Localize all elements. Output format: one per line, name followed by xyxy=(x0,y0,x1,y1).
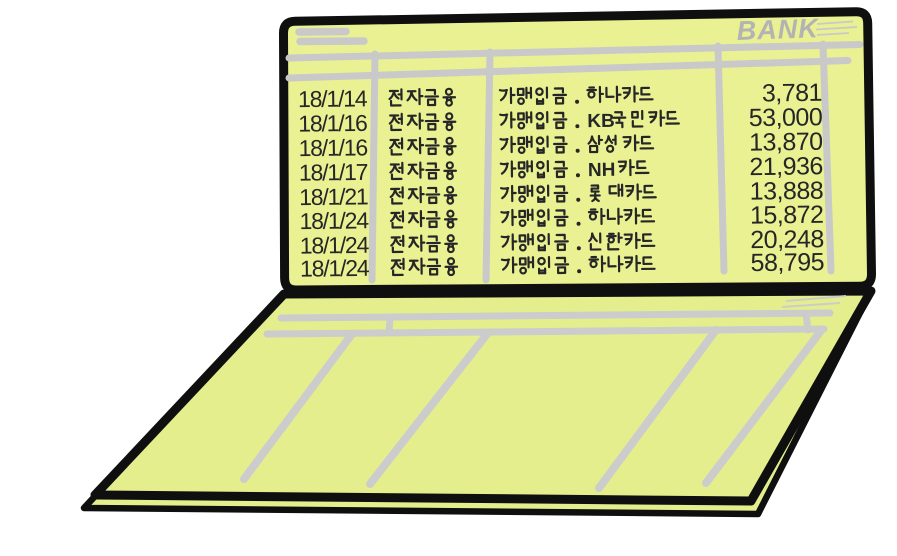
svg-text:18/1/16: 18/1/16 xyxy=(298,110,367,137)
svg-text:18/1/24: 18/1/24 xyxy=(300,255,370,282)
svg-text:18/1/21: 18/1/21 xyxy=(299,183,368,210)
svg-text:18/1/16: 18/1/16 xyxy=(298,134,367,161)
svg-text:18/1/14: 18/1/14 xyxy=(298,85,368,112)
svg-text:18/1/17: 18/1/17 xyxy=(299,159,368,186)
svg-text:BANK: BANK xyxy=(736,13,820,46)
svg-text:NH: NH xyxy=(588,160,616,181)
svg-text:18/1/24: 18/1/24 xyxy=(299,207,369,234)
svg-text:58,795: 58,795 xyxy=(750,248,824,277)
svg-text:KB: KB xyxy=(587,111,615,132)
